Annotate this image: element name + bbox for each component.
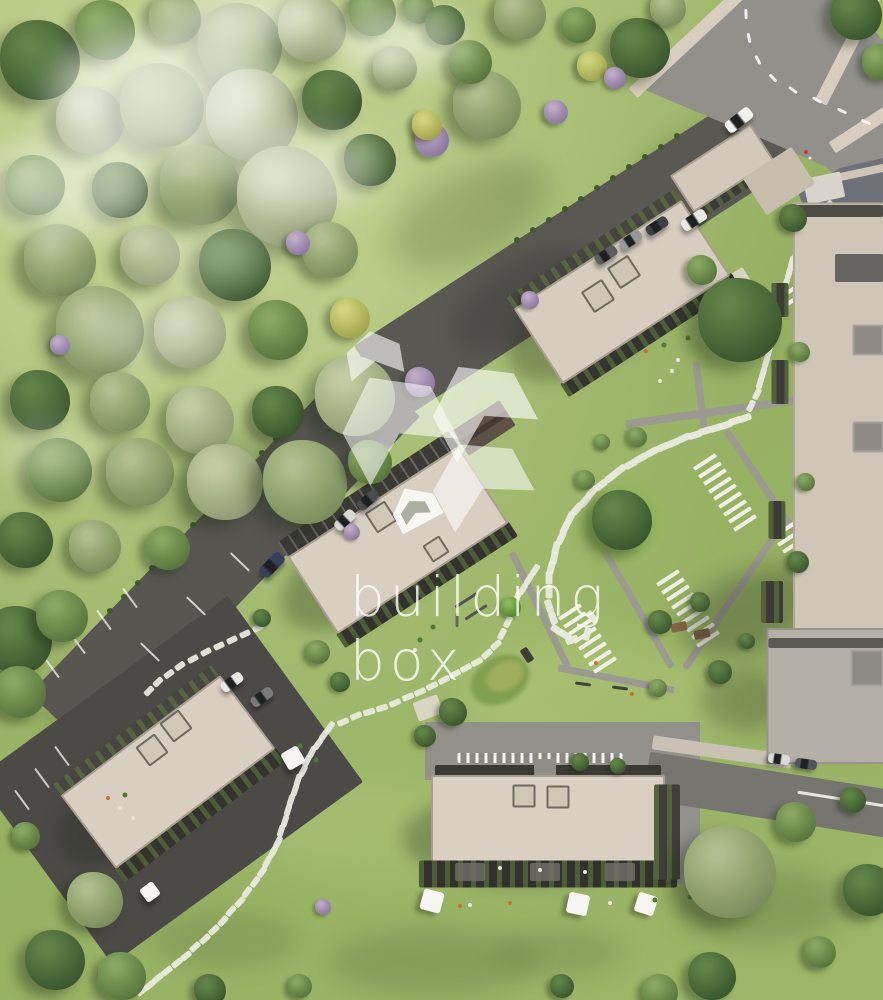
aerial-site-render: building box	[0, 0, 883, 1000]
tree	[610, 758, 626, 774]
tree	[0, 512, 53, 568]
patio-furniture	[670, 369, 674, 373]
tree	[776, 802, 816, 842]
stepping-stone	[375, 703, 388, 712]
stepping-stone	[425, 681, 438, 691]
tree	[146, 526, 190, 570]
patio-furniture	[118, 806, 122, 810]
tree	[592, 490, 652, 550]
tree	[571, 753, 589, 771]
tree	[25, 930, 85, 990]
fog	[77, 300, 227, 364]
patio-furniture	[676, 358, 680, 362]
tree	[797, 473, 815, 491]
umbrella	[566, 892, 591, 917]
tree	[306, 640, 330, 664]
roof-cube	[853, 422, 883, 453]
pedestrian	[809, 157, 812, 160]
skylight	[547, 786, 570, 809]
hedge-row	[562, 206, 568, 212]
tree	[521, 291, 539, 309]
building-e-balcony	[761, 581, 783, 623]
shrubs	[298, 744, 303, 749]
skylight	[513, 785, 536, 808]
tree	[0, 666, 46, 718]
tree	[501, 597, 521, 617]
tree	[687, 255, 717, 285]
tree	[302, 70, 362, 130]
tree	[412, 110, 442, 140]
fog	[150, 225, 270, 285]
tree	[787, 551, 809, 573]
tree	[302, 222, 358, 278]
tree	[330, 298, 370, 338]
hedge-row	[594, 185, 600, 191]
pedestrian	[804, 150, 808, 154]
shrubs	[431, 625, 436, 630]
tree	[577, 51, 607, 81]
tree	[649, 679, 667, 697]
roof-cube	[853, 325, 883, 356]
building-e-gap	[769, 638, 883, 648]
tree	[688, 952, 736, 1000]
tree	[344, 524, 360, 540]
tree	[50, 335, 70, 355]
tree	[12, 822, 40, 850]
tree	[405, 367, 435, 397]
tree	[604, 67, 626, 89]
stepping-stone	[401, 692, 414, 702]
tree	[248, 300, 308, 360]
hedge-row	[626, 164, 632, 170]
flower-pots	[630, 692, 634, 696]
hedge-row	[610, 175, 616, 181]
tree	[90, 372, 150, 432]
hedge-row	[107, 608, 113, 614]
stepping-stone	[503, 615, 514, 628]
shrubs	[123, 793, 128, 798]
hedge-row	[259, 450, 265, 456]
tree	[439, 698, 467, 726]
building-e-lower-roof	[767, 628, 883, 764]
shrubs	[418, 638, 423, 643]
hedge-row	[642, 154, 648, 160]
playground-frame	[464, 604, 487, 620]
stepping-stone	[388, 697, 401, 707]
stepping-stone	[336, 716, 349, 726]
stepping-stone	[437, 675, 450, 686]
stepping-stone	[362, 707, 375, 716]
tree	[790, 342, 810, 362]
tree	[36, 590, 88, 642]
hedge-row	[578, 196, 584, 202]
tree	[106, 438, 174, 506]
terrace	[530, 863, 560, 881]
tree	[315, 356, 395, 436]
roof-cube	[851, 650, 883, 687]
tree	[840, 787, 866, 813]
hedge-row	[530, 227, 536, 233]
tree	[67, 872, 123, 928]
hedge-row	[135, 580, 141, 586]
tree	[739, 633, 755, 649]
flower-pots	[458, 904, 462, 908]
tree	[414, 725, 436, 747]
building-e-balcony	[769, 501, 786, 539]
tree	[690, 592, 710, 612]
umbrella	[633, 891, 658, 916]
building-d-side-balconies	[654, 785, 680, 880]
building-e-edge	[795, 205, 883, 217]
building-e-terrace	[835, 254, 883, 282]
tree	[575, 470, 595, 490]
hedge-row	[546, 217, 552, 223]
tree	[550, 974, 574, 998]
umbrella	[419, 888, 445, 914]
tree	[252, 386, 304, 438]
shrubs	[314, 758, 319, 763]
patio-furniture	[131, 816, 135, 820]
tree	[779, 204, 807, 232]
flower-pots	[644, 349, 648, 353]
tree	[560, 7, 596, 43]
tree	[642, 974, 678, 1000]
tree	[843, 864, 883, 916]
stepping-stone	[459, 662, 472, 673]
playground-frame	[456, 613, 459, 627]
tree	[288, 974, 312, 998]
tree	[627, 427, 647, 447]
tree	[698, 278, 782, 362]
stepping-stone	[349, 711, 362, 721]
tree	[194, 974, 226, 1000]
tree	[648, 610, 672, 634]
tree	[286, 231, 310, 255]
tree	[69, 520, 121, 572]
shrubs	[686, 336, 691, 341]
patio-furniture	[468, 903, 472, 907]
site-scene	[0, 0, 883, 1000]
stepping-stone	[413, 686, 426, 696]
patio-furniture	[413, 648, 417, 652]
patio-furniture	[658, 379, 662, 383]
tree	[253, 609, 271, 627]
terrace	[605, 863, 635, 881]
stepping-stone	[752, 387, 763, 400]
hedge-row	[658, 144, 664, 150]
flower-pots	[106, 796, 110, 800]
tree	[708, 660, 732, 684]
building-e-balcony	[772, 360, 789, 404]
lawn-shadow	[328, 930, 538, 995]
stepping-stone	[546, 572, 553, 585]
stepping-stone	[448, 669, 461, 680]
stepping-stone	[546, 586, 553, 599]
tree	[10, 370, 70, 430]
tree	[24, 224, 96, 296]
fog	[333, 10, 463, 74]
tree	[594, 434, 610, 450]
tree	[348, 440, 392, 484]
terrace	[455, 863, 485, 881]
tree	[544, 100, 568, 124]
hedge-row	[674, 133, 680, 139]
tree	[263, 440, 347, 524]
shrubs	[653, 898, 658, 903]
fog	[220, 128, 380, 213]
patio-furniture	[498, 866, 502, 870]
flower-pots	[508, 901, 512, 905]
tree	[804, 936, 836, 968]
flower-pots	[594, 661, 598, 665]
patio-furniture	[583, 870, 587, 874]
car-parked	[794, 758, 817, 771]
tree	[187, 444, 263, 520]
tree	[684, 826, 776, 918]
tree	[330, 672, 350, 692]
hedge-row	[190, 522, 196, 528]
patio-furniture	[608, 901, 612, 905]
tree	[494, 0, 546, 40]
shrubs	[662, 343, 667, 348]
hedge-row	[514, 237, 520, 243]
playground-frame	[454, 592, 477, 608]
lane-dash	[744, 9, 748, 19]
tree	[315, 899, 331, 915]
patio-furniture	[538, 868, 542, 872]
tree	[98, 952, 146, 1000]
